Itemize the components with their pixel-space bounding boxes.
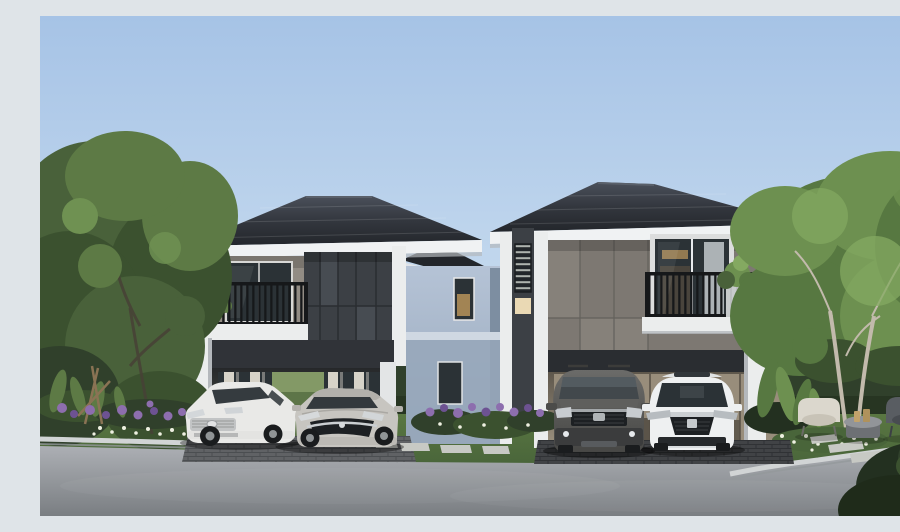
lower-intake — [658, 437, 726, 446]
fog-light — [563, 431, 569, 437]
carport-header — [204, 340, 394, 370]
wheel — [716, 443, 730, 451]
louvre-window — [515, 244, 531, 292]
charcoal-eave-shadow — [304, 252, 392, 262]
charcoal-panel-light — [357, 306, 376, 342]
car-dark-suv — [543, 366, 655, 458]
wing-slab — [406, 332, 502, 340]
wheel — [558, 445, 573, 453]
balcony-post — [304, 282, 308, 326]
emblem — [339, 422, 345, 428]
architectural-rendering: Daytime architectural rendering of two m… — [40, 16, 900, 516]
windshield — [306, 397, 378, 409]
wing-lower-window — [438, 362, 462, 404]
wheel — [625, 445, 640, 453]
lit-panel — [515, 298, 531, 314]
emblem — [593, 413, 605, 421]
candle — [863, 409, 870, 422]
left-charcoal-panels — [304, 252, 392, 342]
side-mirror — [292, 405, 301, 411]
wheel — [654, 443, 668, 451]
juliet-post — [645, 272, 649, 318]
column-shade — [744, 344, 748, 448]
side-mirror — [642, 404, 652, 411]
headlight — [224, 407, 243, 414]
side-mirror — [546, 403, 557, 410]
side-mirror — [394, 406, 403, 412]
emblem — [687, 419, 697, 428]
wing-window-glow — [457, 294, 470, 316]
sunroof — [674, 372, 710, 377]
hood — [559, 399, 639, 408]
side-mirror — [732, 404, 742, 411]
cream-armchair-seat — [802, 414, 836, 426]
candle — [854, 411, 860, 422]
left-corner-band — [392, 246, 406, 366]
courtyard-light — [272, 372, 324, 392]
scene-canvas — [40, 16, 900, 516]
fog-light — [629, 431, 635, 437]
